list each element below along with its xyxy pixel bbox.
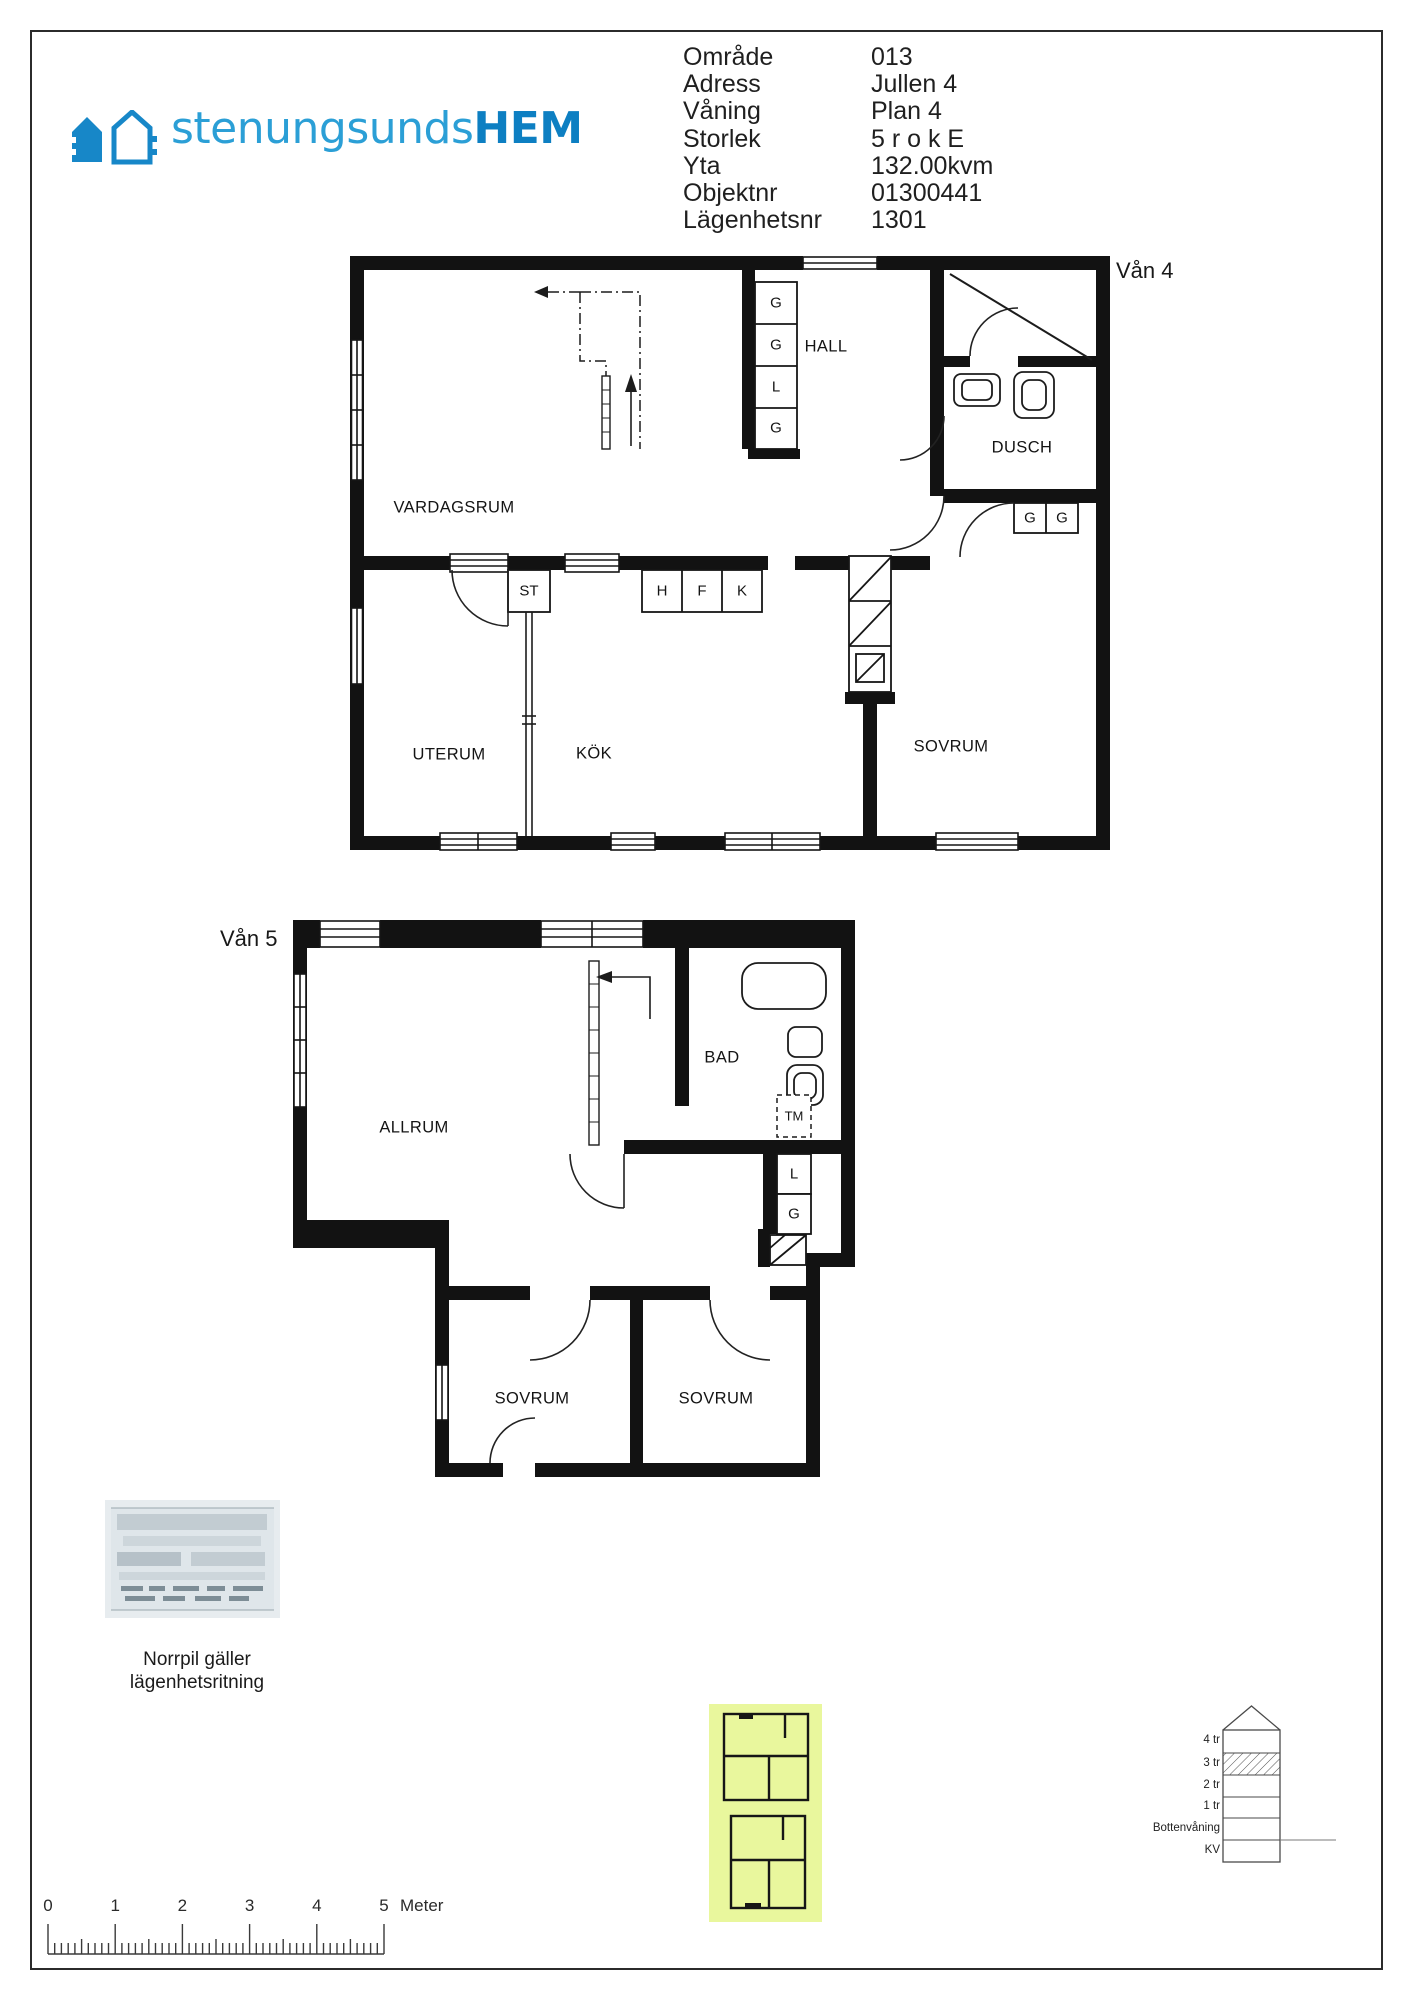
kitchen-unit-label-h: H (657, 583, 668, 600)
floor-plan-van5: ALLRUM BAD SOVRUM SOVRUM TM L G (290, 915, 860, 1485)
closet-label-g: G (1024, 510, 1036, 527)
room-label-kok: KÖK (576, 745, 612, 764)
info-label: Våning (683, 98, 871, 125)
room-label-allrum: ALLRUM (379, 1119, 448, 1138)
info-label: Lägenhetsnr (683, 207, 871, 234)
section-level-label-2tr: 2 tr (1128, 1779, 1220, 1791)
logo-text-bold: HEM (473, 103, 582, 154)
info-value: 132.00kvm (871, 153, 993, 180)
room-label-sovrum-left: SOVRUM (495, 1390, 570, 1409)
kitchen-unit-label-f: F (697, 583, 706, 600)
plan5-stair (589, 961, 650, 1145)
mini-plan-highlight (709, 1704, 822, 1922)
property-info-table: Område013 AdressJullen 4 VåningPlan 4 St… (683, 44, 993, 234)
washer-label-tm: TM (785, 1109, 804, 1124)
info-row: Storlek5 r o k E (683, 126, 993, 153)
logo-house-icons (66, 110, 166, 168)
info-value: Jullen 4 (871, 71, 957, 98)
scale-number-5: 5 (379, 1896, 388, 1916)
info-label: Yta (683, 153, 871, 180)
room-label-dusch: DUSCH (992, 439, 1053, 458)
section-level-label-4tr: 4 tr (1128, 1734, 1220, 1746)
room-label-uterum: UTERUM (413, 746, 486, 765)
plan4-stair-arrow (534, 286, 637, 449)
info-value: Plan 4 (871, 98, 942, 125)
closet-label-st: ST (519, 583, 538, 600)
plan4-shaft (849, 556, 891, 692)
mini-plan-sketch (709, 1704, 822, 1922)
plan5-drawing (290, 915, 860, 1485)
info-label: Område (683, 44, 871, 71)
plan-title-van4: Vån 4 (1116, 258, 1174, 284)
info-row: Lägenhetsnr1301 (683, 207, 993, 234)
site-plan-sketch (105, 1500, 280, 1618)
plan4-drawing (350, 256, 1110, 856)
room-label-bad: BAD (704, 1049, 739, 1068)
info-label: Storlek (683, 126, 871, 153)
closet-label-l: L (790, 1166, 798, 1183)
room-label-hall: HALL (805, 338, 848, 357)
dusch-fixtures (954, 372, 1054, 418)
section-level-label-bottenvaning: Bottenvåning (1128, 1822, 1220, 1834)
plan4-stair-outline (542, 292, 640, 449)
scale-number-2: 2 (178, 1896, 187, 1916)
logo-wordmark: stenungsundsHEM (171, 103, 583, 154)
room-label-vardagsrum: VARDAGSRUM (393, 499, 514, 518)
info-row: Objektnr01300441 (683, 180, 993, 207)
info-row: AdressJullen 4 (683, 71, 993, 98)
north-note-line2: lägenhetsritning (98, 1671, 296, 1694)
bad-fixtures (742, 963, 826, 1105)
closet-label-g: G (770, 295, 782, 312)
building-section-diagram: 4 tr 3 tr 2 tr 1 tr Bottenvåning KV (1128, 1698, 1340, 1878)
info-value: 013 (871, 44, 913, 71)
section-level-label-3tr: 3 tr (1128, 1757, 1220, 1769)
info-value: 1301 (871, 207, 927, 234)
scale-bar: 0 1 2 3 4 5 Meter (40, 1896, 480, 1968)
info-label: Adress (683, 71, 871, 98)
info-value: 5 r o k E (871, 126, 964, 153)
room-label-sovrum-right: SOVRUM (679, 1390, 754, 1409)
scale-number-1: 1 (110, 1896, 119, 1916)
room-label-sovrum: SOVRUM (914, 738, 989, 757)
info-label: Objektnr (683, 180, 871, 207)
logo-text-light: stenungsunds (171, 103, 473, 154)
north-note-line1: Norrpil gäller (98, 1648, 296, 1671)
document-page: stenungsundsHEM Område013 AdressJullen 4… (0, 0, 1413, 2000)
kitchen-unit-label-k: K (737, 583, 747, 600)
info-row: Område013 (683, 44, 993, 71)
section-level-label-kv: KV (1128, 1844, 1220, 1856)
closet-label-g: G (770, 420, 782, 437)
plan5-shaft (770, 1235, 806, 1265)
floor-plan-van4: VARDAGSRUM HALL DUSCH UTERUM KÖK SOVRUM … (350, 256, 1110, 856)
scale-number-4: 4 (312, 1896, 321, 1916)
info-value: 01300441 (871, 180, 982, 207)
closet-label-l: L (772, 379, 780, 396)
scale-unit-label: Meter (400, 1896, 443, 1916)
closet-label-g: G (1056, 510, 1068, 527)
scale-ruler-ticks (40, 1922, 480, 1962)
north-note: Norrpil gäller lägenhetsritning (98, 1648, 296, 1694)
plan-title-van5: Vån 5 (220, 926, 278, 952)
scale-number-3: 3 (245, 1896, 254, 1916)
section-level-label-1tr: 1 tr (1128, 1800, 1220, 1812)
closet-label-g: G (770, 337, 782, 354)
info-row: Yta132.00kvm (683, 153, 993, 180)
closet-label-g: G (788, 1206, 800, 1223)
scale-number-0: 0 (43, 1896, 52, 1916)
site-plan-thumbnail (105, 1500, 280, 1618)
info-row: VåningPlan 4 (683, 98, 993, 125)
plan4-glass-partition (522, 612, 536, 836)
